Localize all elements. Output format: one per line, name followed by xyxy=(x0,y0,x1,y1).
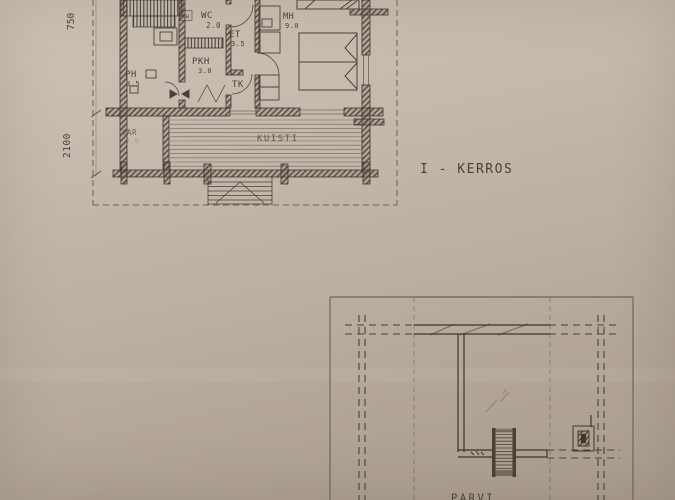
floorplan-drawing: WC 2.0 KH ET 3.5 PKH 3.0 PH 3.5 TK MH 9.… xyxy=(0,0,675,500)
room-label-pkh: PKH xyxy=(192,57,210,67)
plan2-loft-walls xyxy=(414,324,591,457)
room-label-kuisti: KUISTI xyxy=(257,134,299,144)
plan2-pencil-marks xyxy=(486,389,509,412)
plan2-wall-notes xyxy=(471,451,484,455)
plan1-caption: I - KERROS xyxy=(420,162,513,177)
room-label-kh: KH xyxy=(182,15,190,21)
plan1-staircase xyxy=(121,0,183,27)
scanned-floorplan-page: WC 2.0 KH ET 3.5 PKH 3.0 PH 3.5 TK MH 9.… xyxy=(0,0,675,500)
plan1-walls xyxy=(106,0,388,184)
room-label-wc: WC xyxy=(201,11,213,21)
plan2-staircase xyxy=(492,428,516,477)
room-area-var: 2.0 xyxy=(126,137,139,145)
plan1-entry-steps xyxy=(208,177,272,205)
room-area-mh: 9.0 xyxy=(285,22,299,30)
dimension-750: 750 xyxy=(66,13,77,30)
room-area-et: 3.5 xyxy=(231,40,245,48)
room-label-mh: MH xyxy=(283,12,294,22)
plan1-dimension-texts: 750 2100 xyxy=(62,13,77,158)
room-area-ph: 3.5 xyxy=(126,80,140,88)
room-label-et: ET xyxy=(229,30,241,40)
plan2-caption: PARVI xyxy=(451,493,495,500)
room-area-wc: 2.0 xyxy=(206,21,221,30)
room-label-var: VAR xyxy=(122,128,137,137)
plan1-wc-wall-hatched xyxy=(185,38,223,48)
dimension-2100: 2100 xyxy=(62,133,73,158)
room-area-pkh: 3.0 xyxy=(198,67,212,75)
room-label-ph: PH xyxy=(125,70,137,80)
plan2-chimney xyxy=(573,426,594,451)
room-label-tk: TK xyxy=(232,80,244,90)
plan2-dashed-walls xyxy=(345,315,620,500)
